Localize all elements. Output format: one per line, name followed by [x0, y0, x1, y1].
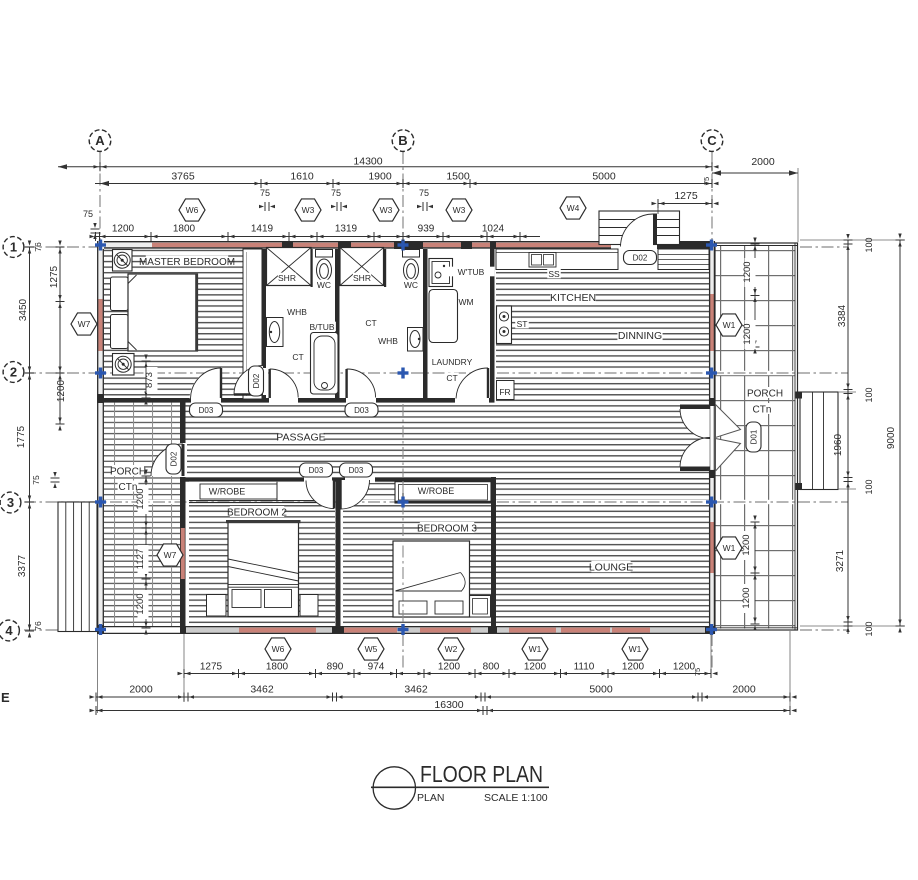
svg-text:2000: 2000 [751, 156, 775, 168]
svg-text:1775: 1775 [16, 425, 27, 448]
svg-text:CTn: CTn [753, 404, 772, 415]
svg-text:1419: 1419 [251, 224, 274, 235]
svg-text:1800: 1800 [173, 224, 196, 235]
svg-text:CT: CT [365, 318, 376, 328]
svg-text:W3: W3 [380, 205, 393, 215]
svg-text:E: E [1, 690, 10, 705]
svg-text:W4: W4 [567, 203, 580, 213]
svg-text:B: B [398, 133, 407, 148]
svg-text:5000: 5000 [592, 171, 616, 183]
svg-text:W'TUB: W'TUB [458, 267, 485, 277]
svg-text:75: 75 [693, 668, 702, 676]
svg-text:4: 4 [5, 623, 13, 638]
svg-text:1200: 1200 [135, 488, 146, 509]
svg-text:WHB: WHB [378, 336, 398, 346]
svg-text:PASSAGE: PASSAGE [276, 432, 325, 444]
svg-text:PORCH: PORCH [747, 388, 783, 399]
svg-text:DINNING: DINNING [618, 330, 662, 342]
svg-text:W/ROBE: W/ROBE [209, 487, 246, 497]
svg-text:3384: 3384 [837, 304, 848, 327]
svg-text:D02: D02 [170, 451, 179, 466]
svg-text:1200: 1200 [524, 662, 547, 673]
svg-text:3462: 3462 [250, 684, 274, 696]
svg-text:14300: 14300 [353, 156, 382, 168]
svg-text:WHB: WHB [287, 307, 307, 317]
svg-text:1200: 1200 [741, 534, 752, 555]
svg-text:LAUNDRY: LAUNDRY [432, 357, 473, 367]
svg-text:1024: 1024 [482, 224, 505, 235]
svg-text:3271: 3271 [835, 549, 846, 572]
svg-text:CT: CT [292, 352, 303, 362]
svg-text:W1: W1 [629, 644, 642, 654]
svg-text:939: 939 [418, 224, 435, 235]
svg-text:100: 100 [864, 387, 874, 402]
svg-text:W7: W7 [164, 550, 177, 560]
svg-text:3462: 3462 [404, 684, 428, 696]
svg-text:W1: W1 [723, 320, 736, 330]
svg-text:W6: W6 [186, 205, 199, 215]
svg-text:ST: ST [517, 319, 528, 329]
svg-text:873: 873 [144, 372, 155, 388]
svg-text:D01: D01 [750, 429, 759, 444]
svg-text:1960: 1960 [833, 433, 844, 456]
svg-text:974: 974 [368, 662, 385, 673]
svg-text:1: 1 [10, 240, 17, 255]
svg-text:100: 100 [864, 621, 874, 636]
svg-text:BEDROOM 2: BEDROOM 2 [227, 507, 287, 518]
svg-text:75: 75 [260, 188, 270, 198]
svg-text:3: 3 [7, 495, 14, 510]
svg-text:1275: 1275 [200, 662, 223, 673]
svg-text:SHR: SHR [353, 273, 371, 283]
svg-text:SCALE 1:100: SCALE 1:100 [484, 792, 548, 804]
svg-text:75: 75 [31, 475, 41, 485]
svg-text:D03: D03 [309, 466, 324, 475]
svg-text:800: 800 [483, 662, 500, 673]
svg-text:75: 75 [331, 188, 341, 198]
svg-text:D02: D02 [252, 373, 261, 388]
svg-text:W6: W6 [272, 644, 285, 654]
svg-text:MASTER BEDROOM: MASTER BEDROOM [139, 257, 235, 268]
svg-text:W/ROBE: W/ROBE [418, 486, 455, 496]
svg-text:WM: WM [458, 297, 473, 307]
svg-text:1200: 1200 [56, 379, 67, 402]
svg-text:WC: WC [404, 280, 418, 290]
svg-text:1900: 1900 [368, 171, 392, 183]
svg-text:1110: 1110 [574, 662, 595, 673]
svg-text:2: 2 [10, 365, 17, 380]
svg-text:A: A [95, 133, 105, 148]
svg-text:W1: W1 [723, 543, 736, 553]
svg-text:1200: 1200 [742, 261, 753, 282]
svg-text:75: 75 [83, 209, 93, 219]
svg-text:2000: 2000 [129, 684, 153, 696]
svg-text:2000: 2000 [732, 684, 756, 696]
svg-text:FR: FR [499, 387, 510, 397]
svg-text:W3: W3 [302, 205, 315, 215]
svg-text:3450: 3450 [18, 298, 29, 321]
svg-text:D03: D03 [349, 466, 364, 475]
svg-text:W5: W5 [365, 644, 378, 654]
svg-text:3377: 3377 [17, 554, 28, 577]
svg-text:W7: W7 [78, 319, 91, 329]
svg-text:PLAN: PLAN [417, 792, 444, 804]
svg-text:PORCH: PORCH [110, 466, 146, 477]
svg-text:B/TUB: B/TUB [309, 322, 334, 332]
svg-text:SHR: SHR [278, 273, 296, 283]
svg-text:76: 76 [33, 621, 43, 631]
svg-text:1200: 1200 [622, 662, 645, 673]
svg-text:C: C [707, 133, 717, 148]
svg-text:1319: 1319 [335, 224, 358, 235]
svg-text:1275: 1275 [674, 190, 698, 202]
svg-text:LOUNGE: LOUNGE [589, 562, 633, 574]
svg-text:75: 75 [419, 188, 429, 198]
svg-text:1200: 1200 [742, 323, 753, 344]
svg-text:CT: CT [446, 373, 457, 383]
svg-text:1200: 1200 [112, 224, 135, 235]
svg-text:9000: 9000 [886, 426, 897, 449]
svg-text:1275: 1275 [49, 265, 60, 288]
svg-text:FLOOR PLAN: FLOOR PLAN [420, 761, 543, 787]
svg-text:100: 100 [864, 237, 874, 252]
svg-text:SS: SS [548, 269, 560, 279]
svg-text:WC: WC [317, 280, 331, 290]
svg-text:W2: W2 [445, 644, 458, 654]
svg-text:16300: 16300 [434, 699, 463, 711]
svg-text:KITCHEN: KITCHEN [550, 292, 596, 304]
svg-text:W1: W1 [529, 644, 542, 654]
svg-text:76: 76 [33, 242, 43, 252]
svg-text:D02: D02 [633, 253, 648, 262]
svg-text:BEDROOM 3: BEDROOM 3 [417, 523, 477, 534]
svg-text:1200: 1200 [135, 593, 146, 614]
svg-text:1500: 1500 [446, 171, 470, 183]
svg-text:1127: 1127 [135, 549, 146, 569]
svg-text:3765: 3765 [171, 171, 195, 183]
svg-text:5000: 5000 [589, 684, 613, 696]
svg-text:D03: D03 [354, 406, 369, 415]
svg-text:W3: W3 [453, 205, 466, 215]
svg-text:1200: 1200 [438, 662, 461, 673]
svg-text:1610: 1610 [290, 171, 314, 183]
svg-text:D03: D03 [199, 406, 214, 415]
svg-text:1800: 1800 [266, 662, 289, 673]
svg-text:890: 890 [327, 662, 344, 673]
svg-text:100: 100 [864, 479, 874, 494]
svg-text:1200: 1200 [741, 587, 752, 608]
